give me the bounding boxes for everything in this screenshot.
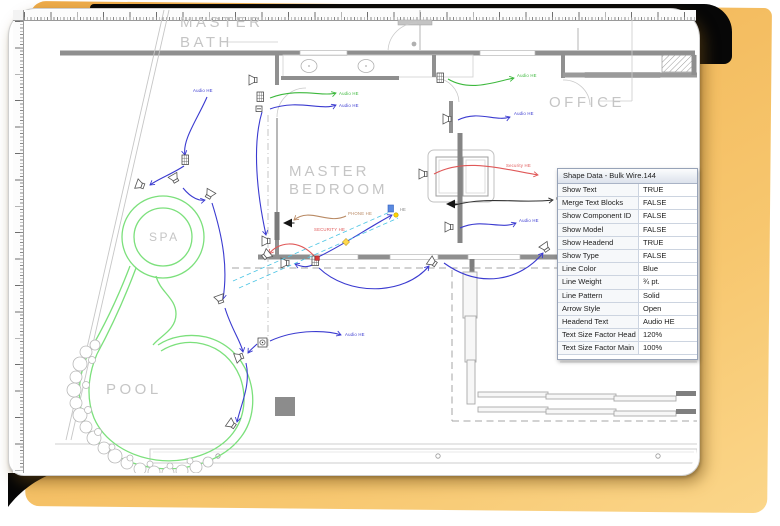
speaker-icon[interactable] xyxy=(262,236,270,246)
shape-data-row[interactable]: Line PatternSolid xyxy=(558,290,697,303)
channel-wall xyxy=(97,268,136,354)
wire[interactable] xyxy=(248,344,257,353)
shape-data-row-value[interactable]: Solid xyxy=(639,290,697,302)
speaker-icon[interactable] xyxy=(234,351,245,363)
channel-wall xyxy=(153,276,176,345)
wire[interactable] xyxy=(270,105,336,109)
channel-wall xyxy=(89,266,130,352)
wire[interactable] xyxy=(150,166,184,185)
shape-data-row-label: Text Size Factor Head End xyxy=(558,329,639,341)
wire-mid-handle[interactable] xyxy=(342,238,349,245)
wall-stub xyxy=(676,391,696,396)
shape-data-row-label: Merge Text Blocks xyxy=(558,197,639,209)
rock-border xyxy=(67,340,213,479)
wall-stub xyxy=(676,409,696,414)
shape-data-row[interactable]: Line ColorBlue xyxy=(558,263,697,276)
shape-data-title[interactable]: Shape Data - Bulk Wire.144 xyxy=(558,169,697,184)
room-label-master-bath-1: MASTER xyxy=(180,14,264,31)
shape-data-row-value[interactable]: Audio HE xyxy=(639,316,697,328)
shape-data-row-label: Line Weight xyxy=(558,276,639,288)
shape-data-row-value[interactable]: FALSE xyxy=(639,224,697,236)
wire-label: Audio HE xyxy=(339,103,359,108)
shape-data-row[interactable]: Merge Text BlocksFALSE xyxy=(558,197,697,210)
wire[interactable] xyxy=(294,215,346,220)
shape-data-row-value[interactable]: TRUE xyxy=(639,184,697,196)
shape-data-row-label: Show Text xyxy=(558,184,639,196)
shape-data-row[interactable]: Line Weight¾ pt. xyxy=(558,276,697,289)
shape-data-row[interactable]: Show TypeFALSE xyxy=(558,250,697,263)
shape-data-row-value[interactable]: FALSE xyxy=(639,197,697,209)
shape-data-row-label: Show Model xyxy=(558,224,639,236)
shape-data-rows: Show TextTRUEMerge Text BlocksFALSEShow … xyxy=(558,184,697,355)
shape-data-row[interactable]: Text Size Factor Head End120% xyxy=(558,329,697,342)
wire-begin-handle[interactable] xyxy=(315,256,319,260)
wire[interactable] xyxy=(458,116,510,120)
room-label-pool: POOL xyxy=(106,381,162,398)
wire-label: Audio HE xyxy=(193,88,213,93)
selection-overlay[interactable]: HE xyxy=(233,205,406,288)
shape-data-row[interactable]: Arrow StyleOpen xyxy=(558,303,697,316)
speaker-icon[interactable] xyxy=(419,169,427,179)
wire-label: Audio HE xyxy=(517,73,537,78)
speaker-filled-icon[interactable] xyxy=(283,219,295,228)
shape-data-row-value[interactable]: FALSE xyxy=(639,210,697,222)
wire[interactable] xyxy=(185,97,207,155)
devices-layer[interactable] xyxy=(135,73,607,431)
speaker-icon[interactable] xyxy=(539,241,552,253)
wire-label: PHONE HE xyxy=(348,211,372,216)
speaker-icon[interactable] xyxy=(135,179,146,191)
wire-label: Audio HE xyxy=(339,91,359,96)
shape-data-row[interactable]: Show TextTRUE xyxy=(558,184,697,197)
volume-control-icon[interactable] xyxy=(258,338,267,347)
shape-data-row[interactable]: Text Size Factor Main100% xyxy=(558,342,697,355)
selection-outline xyxy=(233,211,392,281)
wire-label: Audio HE xyxy=(514,111,534,116)
wire[interactable] xyxy=(183,188,205,200)
keypad-icon[interactable] xyxy=(437,73,444,83)
speaker-icon[interactable] xyxy=(203,188,216,200)
wire-label: Audio HE xyxy=(519,218,539,223)
wire[interactable] xyxy=(295,264,314,267)
shape-data-row-label: Line Color xyxy=(558,263,639,275)
room-labels: MASTER BATH MASTER BEDROOM OFFICE SPA PO… xyxy=(106,14,625,398)
room-label-spa: SPA xyxy=(149,230,180,244)
wire-label: SECURITY HE xyxy=(314,227,345,232)
shape-data-row-value[interactable]: FALSE xyxy=(639,250,697,262)
shape-data-row[interactable]: Headend TextAudio HE xyxy=(558,316,697,329)
keypad-icon[interactable] xyxy=(257,92,264,102)
shape-data-row-value[interactable]: Blue xyxy=(639,263,697,275)
shape-data-row[interactable]: Show ModelFALSE xyxy=(558,224,697,237)
wire[interactable] xyxy=(212,203,225,299)
shape-data-row[interactable]: Show Component IDFALSE xyxy=(558,210,697,223)
keypad-icon[interactable] xyxy=(182,155,189,165)
wire-label: Security HE xyxy=(506,163,531,168)
endpoint-glyph-icon xyxy=(388,205,394,212)
shape-data-row-label: Show Component ID xyxy=(558,210,639,222)
speaker-icon[interactable] xyxy=(445,222,453,232)
shape-data-row[interactable]: Show HeadendTRUE xyxy=(558,237,697,250)
shape-data-row-value[interactable]: ¾ pt. xyxy=(639,276,697,288)
shape-data-row-value[interactable]: 100% xyxy=(639,342,697,354)
wire[interactable] xyxy=(319,266,429,289)
wire-end-handle[interactable] xyxy=(394,213,398,217)
wire[interactable] xyxy=(448,78,514,85)
shape-data-row-value[interactable]: TRUE xyxy=(639,237,697,249)
shape-data-row-value[interactable]: 120% xyxy=(639,329,697,341)
shape-data-row-label: Show Type xyxy=(558,250,639,262)
speaker-icon[interactable] xyxy=(214,294,226,305)
shape-data-row-label: Show Headend xyxy=(558,237,639,249)
shape-data-row-label: Headend Text xyxy=(558,316,639,328)
endpoint-label: HE xyxy=(400,207,406,212)
shape-data-row-label: Text Size Factor Main xyxy=(558,342,639,354)
wire[interactable] xyxy=(270,332,341,341)
wire[interactable] xyxy=(256,112,266,235)
speaker-icon[interactable] xyxy=(260,249,273,262)
shape-data-row-label: Arrow Style xyxy=(558,303,639,315)
room-label-master-bedroom-1: MASTER xyxy=(289,163,370,180)
wire-label: Audio HE xyxy=(345,332,365,337)
wire[interactable] xyxy=(270,93,336,98)
wire[interactable] xyxy=(318,215,392,257)
shape-data-panel[interactable]: Shape Data - Bulk Wire.144 Show TextTRUE… xyxy=(557,168,698,360)
room-label-office: OFFICE xyxy=(549,94,625,111)
equipment-pad xyxy=(275,397,295,416)
room-label-master-bath-2: BATH xyxy=(180,34,233,51)
speaker-icon[interactable] xyxy=(249,75,257,85)
shape-data-row-value[interactable]: Open xyxy=(639,303,697,315)
outlet-icon[interactable] xyxy=(256,106,262,112)
room-label-master-bedroom-2: BEDROOM xyxy=(289,181,388,198)
wire[interactable] xyxy=(460,223,516,228)
wire[interactable] xyxy=(225,308,243,352)
pool-outline-inner xyxy=(89,342,244,460)
shape-data-row-label: Line Pattern xyxy=(558,290,639,302)
